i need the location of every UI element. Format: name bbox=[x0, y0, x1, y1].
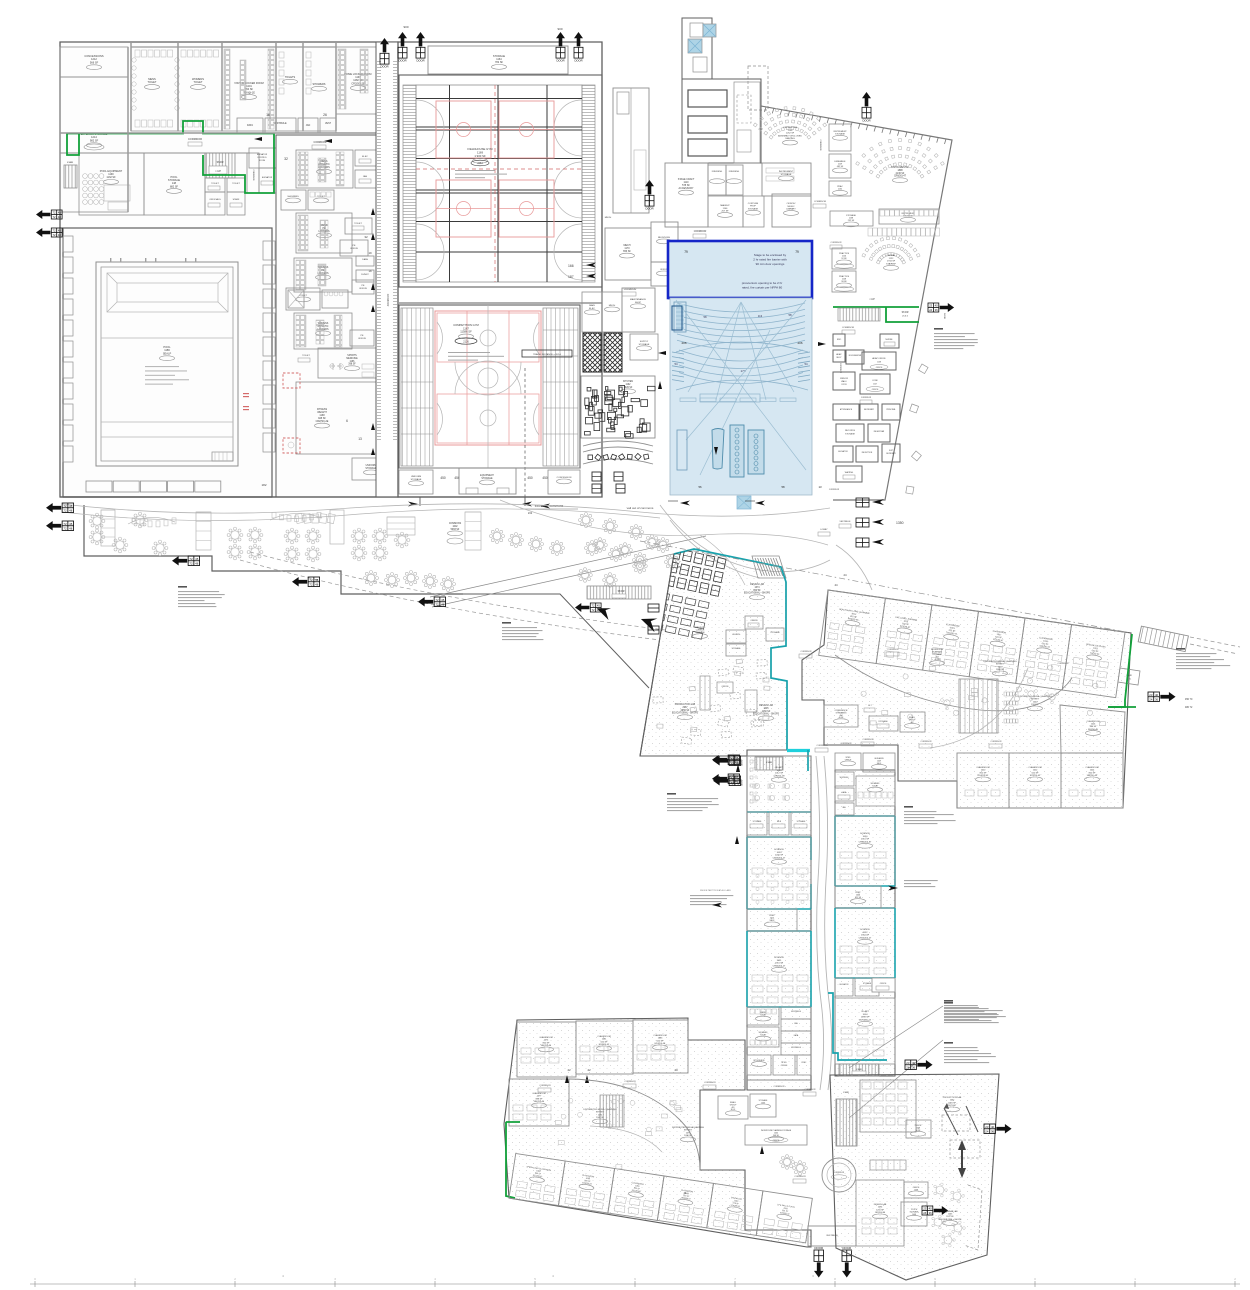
svg-text:DOOR: DOOR bbox=[645, 207, 653, 211]
svg-text:CONTROL: CONTROL bbox=[257, 157, 268, 159]
svg-text:2956 SF: 2956 SF bbox=[681, 710, 690, 712]
svg-text:STAIR: STAIR bbox=[902, 311, 909, 314]
svg-text:900: 900 bbox=[403, 25, 408, 29]
svg-text:1350: 1350 bbox=[896, 521, 904, 525]
svg-text:42: 42 bbox=[587, 1068, 591, 1072]
svg-text:DESIGN LAB: DESIGN LAB bbox=[759, 704, 773, 707]
svg-text:1002: 1002 bbox=[452, 526, 458, 528]
svg-text:STORAGE: STORAGE bbox=[846, 214, 856, 217]
svg-text:DRESSING: DRESSING bbox=[712, 171, 723, 173]
svg-text:CORRIDOR: CORRIDOR bbox=[841, 743, 852, 745]
svg-text:DOOR: DOOR bbox=[416, 59, 424, 63]
svg-text:STORAGE: STORAGE bbox=[732, 647, 742, 650]
svg-text:TOILET: TOILET bbox=[232, 183, 240, 185]
svg-text:vail out of commons: vail out of commons bbox=[627, 506, 654, 510]
svg-text:STORAGE: STORAGE bbox=[753, 820, 763, 823]
svg-text:CLASSROOM: CLASSROOM bbox=[532, 1092, 546, 1095]
svg-text:72: 72 bbox=[63, 504, 67, 508]
svg-text:MAKEUP: MAKEUP bbox=[720, 204, 730, 207]
svg-text:1160 SF: 1160 SF bbox=[762, 711, 771, 713]
svg-text:48: 48 bbox=[69, 509, 73, 513]
svg-text:CLASSROOM: CLASSROOM bbox=[539, 1036, 553, 1039]
svg-text:450: 450 bbox=[527, 476, 533, 480]
svg-text:42: 42 bbox=[567, 1068, 571, 1072]
svg-text:DOOR: DOOR bbox=[380, 65, 388, 69]
svg-text:32: 32 bbox=[284, 157, 288, 161]
svg-text:40: 40 bbox=[935, 304, 938, 308]
svg-text:CORRIDOR: CORRIDOR bbox=[831, 242, 842, 244]
svg-text:1734 SF: 1734 SF bbox=[887, 261, 896, 263]
svg-text:72: 72 bbox=[592, 604, 595, 608]
svg-text:MAINTENANCE: MAINTENANCE bbox=[630, 298, 646, 301]
svg-text:CONF: CONF bbox=[872, 380, 878, 382]
svg-text:STORAGE: STORAGE bbox=[748, 207, 759, 210]
svg-text:CR24(50)-2T: CR24(50)-2T bbox=[859, 937, 872, 939]
svg-text:24: 24 bbox=[923, 1211, 926, 1215]
svg-text:WALL/: WALL/ bbox=[841, 380, 847, 383]
svg-text:1898: 1898 bbox=[897, 170, 903, 172]
svg-text:LOBBY: LOBBY bbox=[820, 529, 828, 531]
svg-text:72: 72 bbox=[309, 583, 313, 587]
svg-text:1361 SF: 1361 SF bbox=[861, 839, 870, 841]
svg-text:622 SF: 622 SF bbox=[657, 1040, 664, 1042]
svg-text:40: 40 bbox=[1155, 693, 1159, 697]
svg-text:182: 182 bbox=[261, 483, 266, 487]
svg-text:1050: 1050 bbox=[863, 836, 869, 838]
svg-text:TOILET: TOILET bbox=[302, 355, 310, 357]
svg-text:CORRIDOR: CORRIDOR bbox=[386, 294, 388, 307]
svg-text:PRODUCTION LAB: PRODUCTION LAB bbox=[675, 703, 696, 706]
svg-text:CORRIDOR: CORRIDOR bbox=[801, 651, 812, 653]
svg-text:36: 36 bbox=[991, 1130, 995, 1134]
svg-text:72: 72 bbox=[53, 229, 56, 233]
svg-text:SUPPLY: SUPPLY bbox=[640, 341, 649, 343]
svg-text:RECEIVING: RECEIVING bbox=[658, 237, 670, 239]
svg-text:480 72: 480 72 bbox=[1185, 706, 1193, 709]
svg-text:72: 72 bbox=[309, 578, 313, 582]
svg-text:KILN: KILN bbox=[777, 821, 782, 823]
svg-text:72: 72 bbox=[189, 557, 193, 561]
svg-text:RECEPTION: RECEPTION bbox=[862, 452, 873, 454]
svg-text:24: 24 bbox=[906, 1066, 910, 1070]
svg-text:SCIENCE: SCIENCE bbox=[774, 849, 784, 851]
svg-text:12R(50)-2E: 12R(50)-2E bbox=[773, 775, 785, 777]
svg-text:PRACTICE: PRACTICE bbox=[839, 275, 850, 278]
svg-text:CR64(50)-2T: CR64(50)-2T bbox=[859, 841, 872, 843]
svg-text:23: 23 bbox=[985, 1125, 989, 1129]
svg-text:WNDOW: WNDOW bbox=[840, 378, 848, 380]
svg-text:SRO: SRO bbox=[837, 339, 842, 341]
svg-text:CORRIDOR: CORRIDOR bbox=[834, 1172, 845, 1174]
svg-text:STREET: STREET bbox=[996, 664, 1005, 666]
svg-text:72: 72 bbox=[730, 762, 734, 766]
svg-text:ELEC: ELEC bbox=[362, 156, 368, 158]
svg-text:23: 23 bbox=[1149, 693, 1153, 697]
svg-text:72: 72 bbox=[435, 598, 439, 602]
svg-text:WAITING: WAITING bbox=[845, 471, 854, 474]
svg-text:1674: 1674 bbox=[754, 587, 760, 589]
svg-text:CORRIDOR: CORRIDOR bbox=[805, 1089, 816, 1091]
svg-text:CLASSROOM: CLASSROOM bbox=[1028, 766, 1042, 769]
svg-text:OFFICE: OFFICE bbox=[872, 389, 879, 391]
svg-text:782 SF: 782 SF bbox=[495, 61, 504, 64]
svg-text:STOR: STOR bbox=[841, 384, 847, 386]
svg-text:OFFICE: OFFICE bbox=[773, 1140, 780, 1142]
svg-text:DISTRIBUTED/MEDIA / LEARNING: DISTRIBUTED/MEDIA / LEARNING bbox=[983, 660, 1017, 663]
svg-text:1049: 1049 bbox=[777, 770, 783, 772]
svg-text:DATA: DATA bbox=[247, 124, 253, 127]
svg-text:566 SF: 566 SF bbox=[90, 60, 99, 64]
svg-text:CORRIDOR: CORRIDOR bbox=[624, 1081, 636, 1083]
svg-text:Stage to be enclosed by: Stage to be enclosed by bbox=[754, 253, 787, 257]
svg-text:187: 187 bbox=[568, 275, 574, 279]
svg-text:72: 72 bbox=[435, 603, 439, 607]
svg-text:SPORTS: SPORTS bbox=[347, 355, 357, 357]
svg-text:TOILET: TOILET bbox=[354, 223, 362, 225]
svg-text:SEATING: SEATING bbox=[785, 137, 795, 140]
svg-text:36: 36 bbox=[912, 1066, 916, 1070]
svg-text:STORAGE: STORAGE bbox=[863, 982, 872, 985]
svg-text:2D ART: 2D ART bbox=[861, 1010, 869, 1013]
svg-text:GAGA: GAGA bbox=[842, 791, 848, 794]
svg-text:SECRETARY: SECRETARY bbox=[864, 408, 875, 411]
svg-text:CORRIDOR: CORRIDOR bbox=[861, 397, 872, 399]
svg-text:2 hr rated fire barrier with: 2 hr rated fire barrier with bbox=[753, 257, 787, 261]
svg-text:48: 48 bbox=[736, 782, 740, 786]
svg-text:11586 SF: 11586 SF bbox=[460, 330, 472, 334]
svg-text:72: 72 bbox=[53, 233, 56, 237]
svg-text:982 SF: 982 SF bbox=[90, 138, 99, 142]
svg-text:EDUCATIONAL - SHOPS: EDUCATIONAL - SHOPS bbox=[744, 592, 771, 595]
svg-text:STORAGE: STORAGE bbox=[639, 343, 650, 346]
svg-text:1298 SF: 1298 SF bbox=[861, 1017, 870, 1019]
svg-text:58: 58 bbox=[788, 313, 792, 317]
svg-text:72: 72 bbox=[63, 527, 67, 531]
svg-text:MUSIC: MUSIC bbox=[787, 206, 794, 208]
svg-text:24: 24 bbox=[1149, 698, 1153, 702]
svg-text:BOOKKEEPER: BOOKKEEPER bbox=[849, 355, 862, 357]
svg-text:2967: 2967 bbox=[682, 707, 688, 709]
svg-text:SHOWERS: SHOWERS bbox=[287, 196, 299, 198]
svg-text:CLASSROOM: CLASSROOM bbox=[976, 766, 990, 769]
svg-text:CORRIDOR: CORRIDOR bbox=[842, 327, 854, 329]
svg-text:DESIGN LAB: DESIGN LAB bbox=[874, 1203, 887, 1206]
svg-text:13: 13 bbox=[358, 437, 362, 441]
svg-text:CORRIDOR: CORRIDOR bbox=[252, 170, 254, 181]
svg-text:VESTIBULE: VESTIBULE bbox=[839, 521, 851, 523]
svg-text:48: 48 bbox=[315, 583, 319, 587]
svg-text:CLASSROOM: CLASSROOM bbox=[1087, 720, 1100, 723]
svg-text:PRAC: PRAC bbox=[837, 185, 843, 188]
svg-text:CORRIDOR: CORRIDOR bbox=[991, 741, 1002, 743]
svg-text:TOILET: TOILET bbox=[299, 295, 307, 297]
svg-text:TRAVEL DISTANCE = 262-0: TRAVEL DISTANCE = 262-0 bbox=[533, 353, 562, 356]
svg-text:CORRIDOR: CORRIDOR bbox=[888, 649, 899, 651]
svg-text:622 SF: 622 SF bbox=[1032, 772, 1039, 774]
svg-text:36: 36 bbox=[929, 1211, 932, 1215]
svg-text:48: 48 bbox=[69, 527, 73, 531]
svg-text:622 SF: 622 SF bbox=[601, 1041, 608, 1043]
svg-text:72: 72 bbox=[53, 211, 56, 215]
svg-text:OFFICE: OFFICE bbox=[750, 620, 758, 622]
svg-text:MECH: MECH bbox=[609, 305, 616, 307]
svg-text:CR6(50)-4T: CR6(50)-4T bbox=[894, 176, 907, 178]
svg-text:1107: 1107 bbox=[873, 383, 877, 385]
svg-text:EDUCATIONAL - SHOPS: EDUCATIONAL - SHOPS bbox=[753, 713, 780, 716]
svg-text:STAIR: STAIR bbox=[67, 161, 74, 164]
svg-text:72: 72 bbox=[63, 522, 67, 526]
svg-text:CR64(50)-2T: CR64(50)-2T bbox=[773, 965, 786, 967]
svg-text:JAN: JAN bbox=[363, 175, 368, 178]
svg-text:45: 45 bbox=[58, 211, 61, 215]
svg-text:TOILET: TOILET bbox=[147, 80, 156, 84]
svg-text:24: 24 bbox=[843, 573, 847, 577]
svg-text:<-UP: <-UP bbox=[215, 169, 221, 173]
svg-text:OFFICE: OFFICE bbox=[722, 686, 730, 688]
svg-text:SP ED: SP ED bbox=[781, 1062, 787, 1064]
svg-text:CLASSROOM: CLASSROOM bbox=[1085, 766, 1099, 769]
svg-text:ELEVATOR: ELEVATOR bbox=[262, 176, 273, 179]
svg-text:LIBRARY: LIBRARY bbox=[786, 208, 796, 211]
svg-text:54: 54 bbox=[804, 362, 808, 366]
svg-text:SHOP: SHOP bbox=[635, 302, 642, 304]
svg-text:KITCHEN: KITCHEN bbox=[623, 381, 633, 383]
svg-text:CORRIDOR: CORRIDOR bbox=[704, 1082, 716, 1084]
svg-text:72: 72 bbox=[592, 608, 595, 612]
svg-text:STAIR: STAIR bbox=[618, 590, 625, 593]
svg-text:1052: 1052 bbox=[863, 932, 869, 934]
svg-text:900: 900 bbox=[557, 27, 562, 31]
svg-text:862 SF: 862 SF bbox=[543, 1042, 550, 1044]
svg-text:450 70: 450 70 bbox=[1185, 698, 1193, 701]
svg-text:UNIFORM: UNIFORM bbox=[366, 465, 377, 467]
svg-text:CORRIDOR: CORRIDOR bbox=[921, 741, 932, 743]
svg-text:90 min door openings: 90 min door openings bbox=[756, 262, 785, 266]
svg-text:PRINCIPAL: PRINCIPAL bbox=[886, 408, 895, 411]
svg-text:79: 79 bbox=[795, 250, 799, 254]
svg-text:1132 SF: 1132 SF bbox=[106, 176, 116, 179]
svg-text:ELEVATOR: ELEVATOR bbox=[838, 450, 848, 453]
svg-text:23: 23 bbox=[929, 304, 932, 308]
svg-text:CORRIDOR: CORRIDOR bbox=[624, 289, 637, 291]
svg-text:3D ART: 3D ART bbox=[775, 766, 783, 769]
svg-text:23: 23 bbox=[923, 1207, 926, 1211]
svg-text:CLERKS: CLERKS bbox=[732, 634, 740, 636]
svg-text:CORRIDOR: CORRIDOR bbox=[774, 1086, 785, 1088]
svg-text:TOILET: TOILET bbox=[193, 80, 202, 84]
svg-text:CHORAL: CHORAL bbox=[886, 254, 896, 257]
svg-text:ROOM: ROOM bbox=[259, 160, 266, 162]
svg-text:DOOR: DOOR bbox=[398, 59, 406, 63]
svg-text:EQUIPMENT: EQUIPMENT bbox=[480, 475, 494, 477]
svg-text:40: 40 bbox=[912, 1061, 916, 1065]
svg-text:5083 SF: 5083 SF bbox=[451, 529, 460, 531]
svg-text:72: 72 bbox=[730, 782, 734, 786]
svg-text:DOOR: DOOR bbox=[740, 760, 742, 767]
svg-text:INSTRUMENT: INSTRUMENT bbox=[779, 171, 794, 173]
svg-text:1166: 1166 bbox=[350, 361, 356, 363]
svg-text:OFFICE: OFFICE bbox=[359, 288, 368, 290]
svg-text:STAIR: STAIR bbox=[217, 161, 224, 164]
svg-text:CR26(50)-2T: CR26(50)-2T bbox=[773, 857, 786, 859]
svg-text:1252 SF: 1252 SF bbox=[786, 133, 795, 135]
svg-text:OFFICE: OFFICE bbox=[358, 338, 367, 340]
svg-text:1122: 1122 bbox=[889, 258, 894, 260]
svg-text:STAIR: STAIR bbox=[843, 1091, 849, 1094]
svg-text:36: 36 bbox=[1155, 698, 1159, 702]
svg-text:888 SF: 888 SF bbox=[536, 1098, 543, 1100]
svg-text:1216 SF: 1216 SF bbox=[876, 1209, 885, 1211]
svg-text:13: 13 bbox=[818, 485, 822, 489]
svg-text:450: 450 bbox=[542, 476, 548, 480]
svg-text:206: 206 bbox=[681, 341, 686, 345]
svg-text:1012 SF: 1012 SF bbox=[775, 773, 784, 775]
svg-text:ADAP: ADAP bbox=[836, 353, 842, 356]
svg-text:1138: 1138 bbox=[877, 361, 881, 363]
svg-text:CORRIDOR: CORRIDOR bbox=[817, 745, 828, 747]
svg-text:TOILET: TOILET bbox=[211, 183, 219, 185]
svg-text:VESTIBULE: VESTIBULE bbox=[840, 777, 849, 779]
svg-text:VEST: VEST bbox=[325, 123, 332, 125]
svg-text:CORRIDOR: CORRIDOR bbox=[694, 231, 707, 233]
svg-text:OFFICE: OFFICE bbox=[880, 983, 887, 985]
svg-text:2126: 2126 bbox=[463, 341, 469, 344]
svg-text:16: 16 bbox=[266, 113, 270, 117]
svg-text:CORRIDOR: CORRIDOR bbox=[863, 739, 874, 741]
svg-text:113: 113 bbox=[758, 314, 763, 318]
svg-text:24: 24 bbox=[985, 1130, 989, 1134]
svg-text:48: 48 bbox=[195, 562, 199, 566]
svg-text:24: 24 bbox=[929, 308, 932, 312]
svg-text:DRESSING: DRESSING bbox=[729, 171, 740, 173]
svg-text:852 SF: 852 SF bbox=[980, 772, 987, 774]
svg-text:45: 45 bbox=[195, 557, 199, 561]
svg-text:ELEC: ELEC bbox=[589, 308, 595, 310]
svg-text:72: 72 bbox=[189, 562, 193, 566]
svg-text:56: 56 bbox=[698, 485, 702, 489]
svg-text:2136 SF: 2136 SF bbox=[896, 173, 905, 175]
svg-text:72: 72 bbox=[730, 777, 734, 781]
svg-text:2454: 2454 bbox=[477, 162, 483, 165]
svg-text:DOOR: DOOR bbox=[943, 313, 945, 320]
svg-text:SCIENCE: SCIENCE bbox=[774, 957, 784, 959]
svg-text:45: 45 bbox=[69, 522, 73, 526]
svg-text:STAFF: STAFF bbox=[233, 198, 240, 201]
svg-text:COMMONS: COMMONS bbox=[449, 523, 462, 525]
svg-text:MAIN: MAIN bbox=[589, 304, 595, 307]
svg-text:45: 45 bbox=[736, 777, 740, 781]
svg-text:257 SF: 257 SF bbox=[721, 211, 729, 213]
svg-text:CLASSROOM: CLASSROOM bbox=[597, 1035, 611, 1038]
svg-text:RECORDS: RECORDS bbox=[845, 430, 856, 432]
svg-text:STAIR/SF: STAIR/SF bbox=[886, 262, 896, 265]
svg-text:rated, fire curtain per NFPA 8: rated, fire curtain per NFPA 80 bbox=[742, 285, 783, 289]
svg-text:CORRIDOR: CORRIDOR bbox=[1058, 663, 1069, 665]
svg-text:OFFICIALS: OFFICIALS bbox=[209, 198, 221, 201]
svg-text:PRACTICE: PRACTICE bbox=[839, 252, 850, 255]
svg-text:CORRIDOR: CORRIDOR bbox=[313, 141, 326, 144]
svg-text:UNIFORM: UNIFORM bbox=[411, 476, 421, 478]
svg-text:882 SF: 882 SF bbox=[170, 185, 179, 188]
svg-text:862 SF: 862 SF bbox=[1089, 772, 1096, 774]
svg-text:1876(50)-2Z: 1876(50)-2Z bbox=[859, 1019, 872, 1021]
svg-text:SEALP: SEALP bbox=[163, 351, 172, 355]
svg-text:proscenium opening to be 2 hr: proscenium opening to be 2 hr bbox=[742, 281, 783, 285]
svg-text:PRODUCTION LAB: PRODUCTION LAB bbox=[943, 1096, 962, 1099]
svg-text:CONCESSION: CONCESSION bbox=[557, 477, 572, 479]
svg-text:45: 45 bbox=[315, 578, 319, 582]
svg-text:OFFICE/: OFFICE/ bbox=[787, 203, 796, 205]
svg-text:CLASSROOM: CLASSROOM bbox=[653, 1034, 667, 1037]
svg-text:ELEVATOR: ELEVATOR bbox=[257, 153, 268, 156]
svg-text:CORRIDOR: CORRIDOR bbox=[794, 1176, 806, 1178]
svg-text:STORAGE: STORAGE bbox=[481, 477, 493, 480]
svg-text:ATTENDANCE: ATTENDANCE bbox=[840, 408, 853, 411]
svg-text:1205 SF: 1205 SF bbox=[775, 855, 784, 857]
svg-text:CORRIDOR: CORRIDOR bbox=[188, 137, 202, 141]
svg-text:32: 32 bbox=[364, 235, 368, 239]
svg-text:1136: 1136 bbox=[788, 130, 793, 132]
svg-text:954 SF: 954 SF bbox=[753, 590, 761, 592]
svg-text:26: 26 bbox=[323, 113, 327, 117]
svg-text:SCIENCE: SCIENCE bbox=[860, 929, 870, 931]
svg-text:48: 48 bbox=[58, 215, 61, 219]
svg-text:ORCHESTRA: ORCHESTRA bbox=[783, 126, 797, 129]
svg-text:45: 45 bbox=[736, 757, 740, 761]
svg-text:SCIENCE: SCIENCE bbox=[860, 833, 870, 835]
svg-text:INSTRUMENTAL: INSTRUMENTAL bbox=[891, 166, 909, 169]
svg-text:1053: 1053 bbox=[777, 852, 783, 854]
svg-text:OFFICE: OFFICE bbox=[350, 248, 359, 250]
svg-text:54: 54 bbox=[674, 362, 678, 366]
svg-text:6: 6 bbox=[346, 419, 348, 423]
svg-text:CORRIDOR: CORRIDOR bbox=[829, 489, 840, 491]
svg-text:23: 23 bbox=[906, 1061, 910, 1065]
svg-text:STORAGE: STORAGE bbox=[878, 720, 888, 723]
svg-text:ADAP OFFICE: ADAP OFFICE bbox=[872, 357, 886, 360]
svg-text:ELEC: ELEC bbox=[802, 1062, 807, 1064]
svg-text:DUNST: DUNST bbox=[361, 274, 369, 276]
svg-text:STORAGE: STORAGE bbox=[797, 820, 807, 823]
svg-text:2C3.5: 2C3.5 bbox=[902, 316, 909, 318]
svg-text:1045: 1045 bbox=[763, 708, 769, 710]
svg-text:DISTRIBUTED MEDIA LEARNING: DISTRIBUTED MEDIA LEARNING bbox=[672, 1126, 704, 1129]
svg-text:1004: 1004 bbox=[863, 1014, 869, 1016]
svg-text:45: 45 bbox=[597, 604, 600, 608]
svg-text:1362 SF: 1362 SF bbox=[861, 935, 870, 937]
svg-text:SMOKE PARTITION AT ALL LABS: SMOKE PARTITION AT ALL LABS bbox=[700, 889, 731, 892]
svg-text:OFFICE: OFFICE bbox=[876, 367, 883, 369]
svg-text:STORAGE: STORAGE bbox=[770, 631, 780, 634]
svg-text:ASSEMBLY W/CLOSED: ASSEMBLY W/CLOSED bbox=[778, 134, 802, 137]
svg-text:CORRIDOR: CORRIDOR bbox=[814, 201, 826, 203]
svg-text:41: 41 bbox=[683, 1191, 687, 1195]
svg-text:<-UP: <-UP bbox=[869, 298, 875, 301]
svg-text:COSTUME: COSTUME bbox=[748, 203, 759, 205]
svg-text:36: 36 bbox=[935, 308, 938, 312]
svg-text:40: 40 bbox=[991, 1125, 995, 1129]
svg-text:ACCESSORY: ACCESSORY bbox=[679, 187, 694, 190]
svg-text:OFFICE: OFFICE bbox=[781, 1065, 788, 1067]
svg-text:1051: 1051 bbox=[777, 960, 783, 962]
svg-text:CR2(50)-2E: CR2(50)-2E bbox=[316, 420, 329, 423]
svg-text:1 900 SF: 1 900 SF bbox=[474, 154, 486, 158]
svg-text:58: 58 bbox=[781, 485, 785, 489]
svg-text:TOILETS: TOILETS bbox=[285, 76, 296, 79]
svg-text:2081 SF: 2081 SF bbox=[948, 1102, 957, 1104]
svg-text:40: 40 bbox=[929, 1207, 932, 1211]
svg-text:79: 79 bbox=[684, 250, 688, 254]
